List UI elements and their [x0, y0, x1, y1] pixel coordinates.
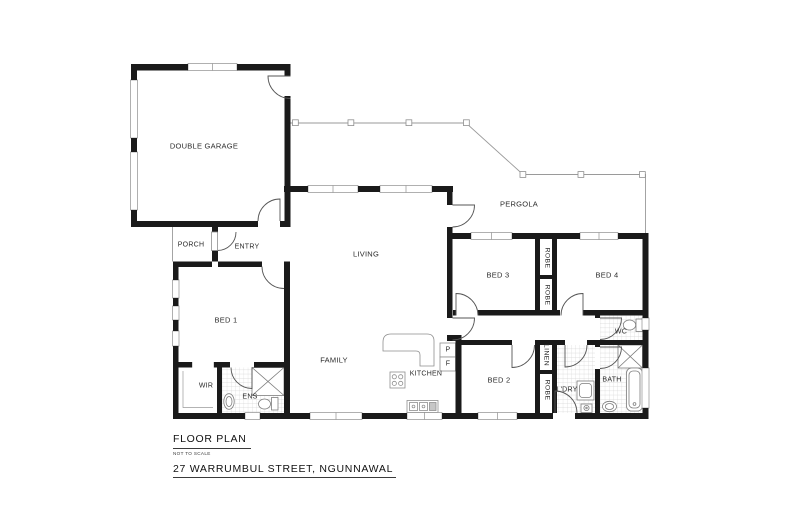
floorplan-page: DOUBLE GARAGE PORCH ENTRY LIVING PERGOLA… — [0, 0, 790, 527]
room-label-family: FAMILY — [320, 356, 348, 364]
room-label-bed1: BED 1 — [215, 316, 238, 324]
cooktop — [390, 372, 405, 388]
room-label-bed3: BED 3 — [487, 271, 510, 279]
room-label-laundry: L'DRY — [556, 387, 577, 394]
bed1-door — [262, 267, 284, 289]
bed2-door — [512, 345, 535, 368]
room-label-wc: WC — [615, 329, 627, 336]
room-label-entry: ENTRY — [235, 244, 260, 251]
room-label-pergola: PERGOLA — [500, 200, 538, 208]
bathtub — [627, 368, 643, 411]
ens-shower — [252, 368, 284, 396]
room-label-living: LIVING — [353, 250, 379, 258]
room-label-robe-bed3: ROBE — [543, 248, 550, 269]
front-door-leaf — [212, 232, 218, 251]
title-block: FLOOR PLAN NOT TO SCALE 27 WARRUMBUL STR… — [173, 429, 396, 478]
bath-basin — [603, 401, 617, 411]
room-label-linen: LINEN — [542, 344, 549, 366]
room-label-ens: ENS — [242, 394, 257, 401]
plan-title: FLOOR PLAN — [173, 433, 251, 449]
room-label-robe-bed4: ROBE — [543, 285, 550, 306]
room-label-bed2: BED 2 — [488, 376, 511, 384]
room-label-robe-bed2: ROBE — [543, 380, 550, 401]
garage-rear-door — [268, 76, 291, 99]
room-label-fridge: F — [446, 361, 451, 368]
room-label-pantry: P — [446, 347, 451, 354]
pergola-door — [453, 205, 475, 227]
sink-drainer — [430, 403, 437, 411]
ens-basin — [224, 394, 234, 410]
room-label-double-garage: DOUBLE GARAGE — [170, 142, 238, 150]
bed4-door — [561, 294, 583, 316]
front-door-arc — [218, 232, 237, 251]
bed3-door — [456, 294, 478, 316]
room-label-wir: WIR — [199, 383, 213, 390]
address: 27 WARRUMBUL STREET, NGUNNAWAL — [173, 463, 396, 479]
room-label-bed4: BED 4 — [596, 271, 619, 279]
room-label-kitchen: KITCHEN — [410, 371, 442, 378]
kitchen-bench — [383, 334, 434, 366]
room-label-bath: BATH — [602, 377, 621, 384]
room-label-porch: PORCH — [178, 242, 205, 249]
pergola-posts — [293, 120, 646, 178]
garage-entry-door — [258, 199, 280, 221]
